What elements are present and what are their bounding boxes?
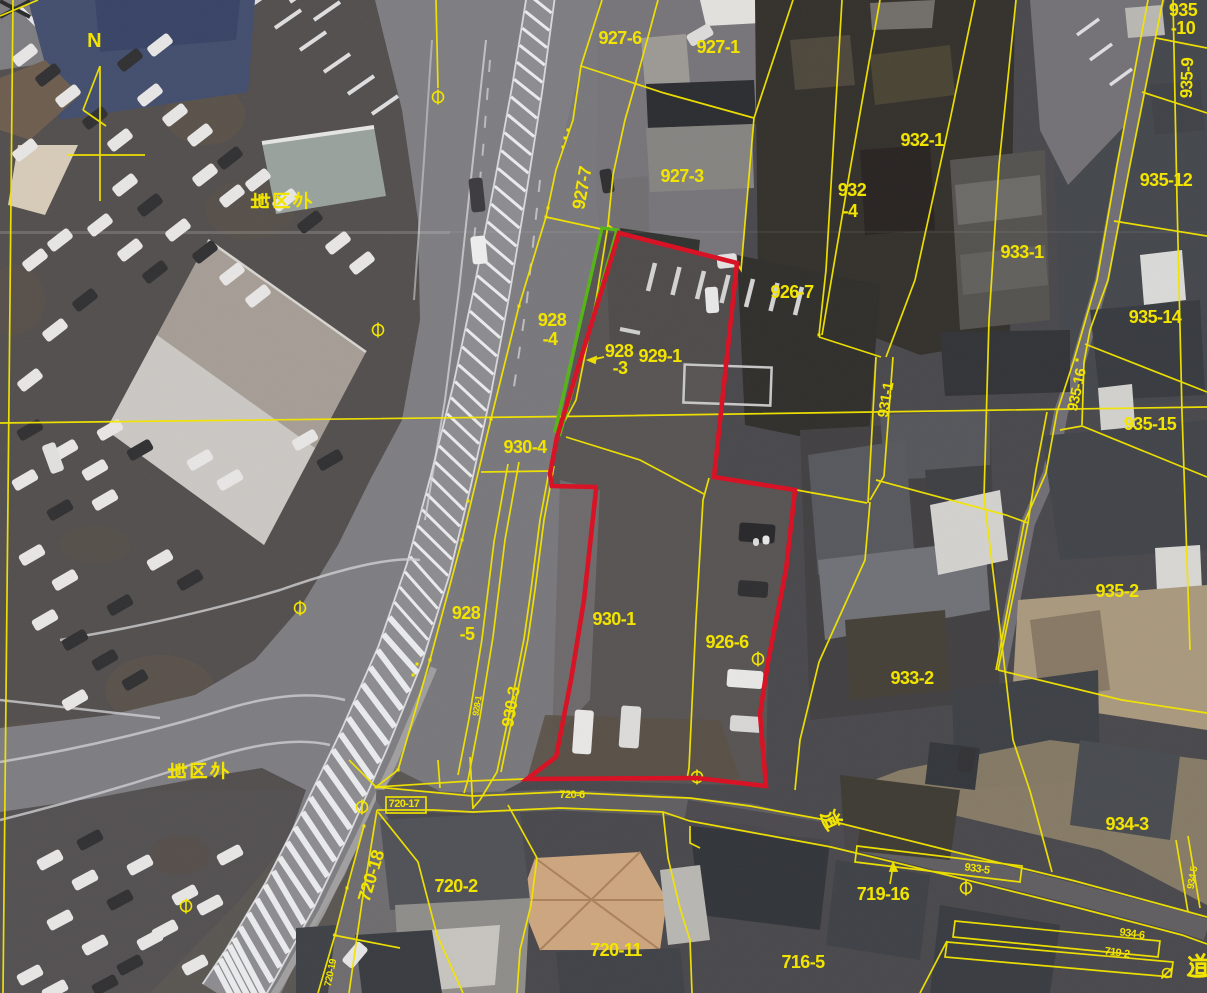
svg-text:935-15: 935-15 <box>1124 414 1177 434</box>
svg-text:930-4: 930-4 <box>503 437 547 457</box>
svg-text:928: 928 <box>452 603 481 623</box>
svg-text:-10: -10 <box>1171 18 1196 38</box>
svg-text:720-2: 720-2 <box>434 876 478 896</box>
svg-text:927-1: 927-1 <box>696 37 740 57</box>
svg-text:935-14: 935-14 <box>1129 307 1182 327</box>
svg-text:720-11: 720-11 <box>590 940 642 960</box>
svg-text:935-12: 935-12 <box>1140 170 1193 190</box>
svg-text:930-1: 930-1 <box>592 609 636 629</box>
svg-text:928: 928 <box>538 310 567 330</box>
svg-text:-4: -4 <box>843 201 858 221</box>
svg-text:933-1: 933-1 <box>1000 242 1044 262</box>
svg-text:934-3: 934-3 <box>1105 814 1149 834</box>
svg-text:926-6: 926-6 <box>705 632 749 652</box>
svg-text:926-7: 926-7 <box>770 282 814 302</box>
svg-text:935-9: 935-9 <box>1177 57 1197 98</box>
svg-text:932-1: 932-1 <box>900 130 944 150</box>
svg-text:720-6: 720-6 <box>559 789 585 801</box>
svg-text:-3: -3 <box>613 358 628 378</box>
svg-text:720-17: 720-17 <box>389 798 420 810</box>
svg-text:719-16: 719-16 <box>857 884 910 904</box>
svg-text:932: 932 <box>838 180 867 200</box>
svg-text:933-2: 933-2 <box>890 668 934 688</box>
svg-text:716-5: 716-5 <box>781 952 825 972</box>
svg-text:927-3: 927-3 <box>660 166 704 186</box>
svg-text:-4: -4 <box>543 329 558 349</box>
svg-text:N: N <box>87 30 101 52</box>
svg-text:929-1: 929-1 <box>638 346 682 366</box>
svg-text:927-6: 927-6 <box>598 28 642 48</box>
svg-text:-5: -5 <box>460 624 475 644</box>
svg-text:935-2: 935-2 <box>1095 581 1139 601</box>
svg-text:935: 935 <box>1169 0 1198 20</box>
